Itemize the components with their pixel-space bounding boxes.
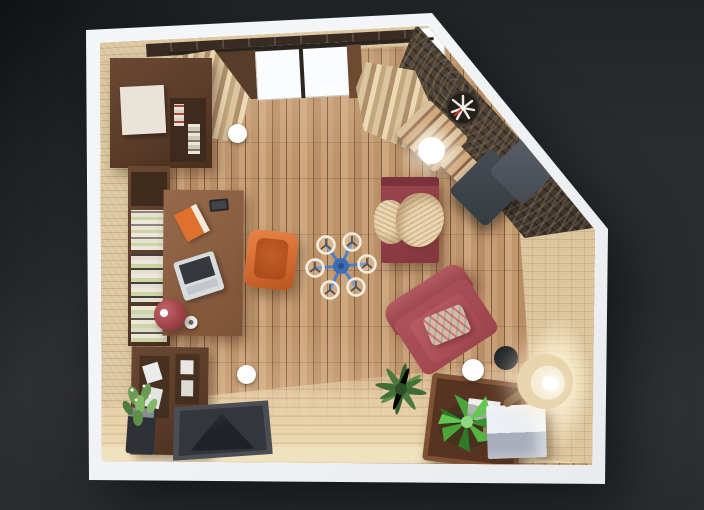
doormat[interactable] (171, 400, 273, 460)
smartphone[interactable] (209, 198, 229, 212)
white-item (180, 360, 193, 374)
floorplan-canvas[interactable] (0, 0, 704, 510)
potted-plant[interactable] (114, 378, 166, 458)
laptop[interactable] (173, 251, 225, 302)
orange-armchair[interactable] (243, 229, 299, 292)
book-stack (131, 210, 167, 250)
ceiling-light-2[interactable] (237, 365, 256, 384)
palm-plant[interactable] (372, 360, 430, 418)
window[interactable] (255, 41, 354, 100)
white-item (181, 380, 193, 396)
orange-armchair-seat (253, 237, 289, 280)
floor-lamp[interactable] (517, 354, 573, 409)
orange-book[interactable] (174, 204, 210, 242)
phone-screen (211, 200, 227, 209)
bookshelf-niche (131, 172, 167, 206)
window-mullion (299, 44, 306, 98)
sideboard-niche (175, 354, 200, 404)
ceiling-light-1[interactable] (228, 124, 247, 143)
wardrobe-white-door (120, 85, 166, 135)
mug-inside (188, 320, 193, 325)
ceiling-fan[interactable] (305, 232, 379, 302)
room[interactable] (0, 0, 704, 510)
mug[interactable] (184, 316, 197, 329)
bench-table-lamp[interactable] (418, 137, 445, 164)
floor-lamp-bulb (546, 378, 558, 390)
red-planter[interactable] (154, 299, 186, 331)
ceiling-light-3[interactable] (462, 359, 484, 381)
shelf-books (188, 124, 200, 154)
book-pages (191, 204, 210, 233)
wardrobe-wall-unit[interactable] (110, 58, 212, 168)
cube-ottoman[interactable] (486, 404, 547, 459)
shelf-books (174, 104, 184, 126)
daybed-headrest (381, 177, 439, 186)
floor-lamp-base (494, 346, 518, 370)
planter-highlight (160, 309, 168, 317)
book-stack (131, 254, 167, 302)
wardrobe-shelf-niche (170, 98, 206, 162)
